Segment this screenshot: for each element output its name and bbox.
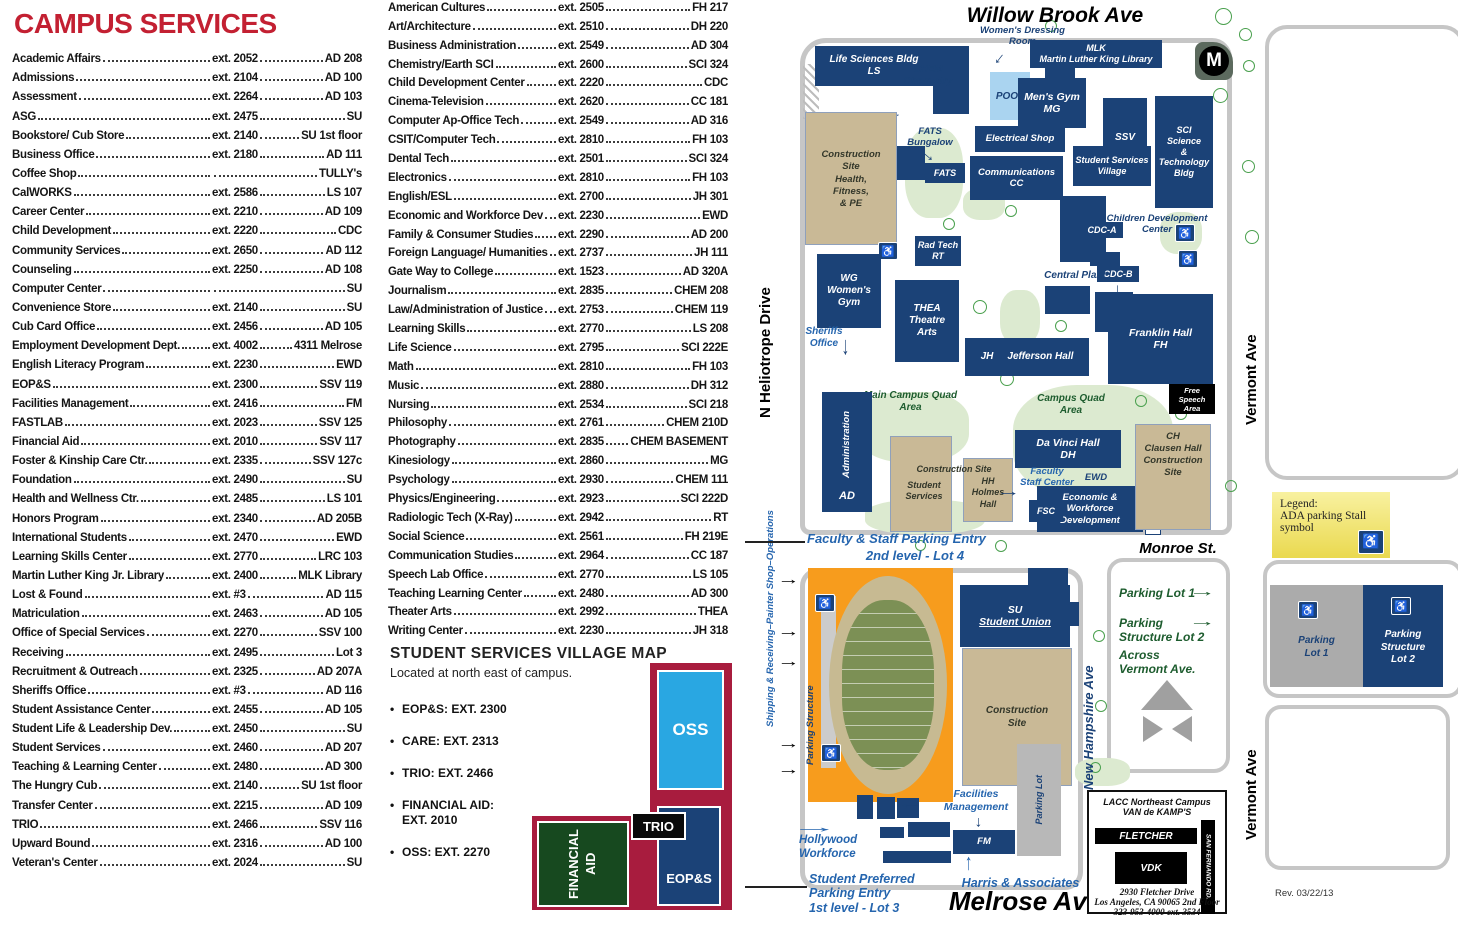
service-name: CalWORKS (12, 187, 72, 199)
department-location: SCI 324 (689, 59, 728, 71)
service-extension: ext. 2140 (212, 302, 258, 314)
tree-icon (1239, 28, 1252, 41)
administration-code: AD (839, 490, 855, 503)
leader-dots (103, 290, 210, 292)
service-extension: ext. #3 (212, 685, 246, 697)
department-extension: ext. 2770 (558, 323, 604, 335)
building-jefferson-hall: JH Jefferson Hall (965, 338, 1089, 376)
directory-row: Computer Center SU (12, 276, 362, 295)
department-name: Philosophy (388, 417, 447, 429)
directory-row: Child Development Center ext. 2220 CDC (388, 71, 728, 90)
ssv-title: STUDENT SERVICES VILLAGE MAP (390, 645, 720, 663)
service-location: SU (347, 283, 362, 295)
service-name: TRIO (12, 819, 38, 831)
compass-arrow-icon (1141, 680, 1193, 710)
street-label-shipping-receiving: Shipping & Receiving–Painter Shop–Operat… (765, 462, 776, 727)
leader-dots (606, 406, 687, 408)
department-location: EWD (702, 210, 728, 222)
leader-dots (535, 236, 556, 238)
directory-row: Foundation ext. 2490 SU (12, 467, 362, 486)
department-location: CC 181 (691, 96, 728, 108)
tree-icon (1213, 88, 1228, 103)
leader-dots (126, 137, 210, 139)
directory-row: Coffee Shop TULLY's (12, 161, 362, 180)
service-location: 4311 Melrose (294, 340, 362, 352)
leader-dots (485, 576, 556, 578)
building-central-plant (1045, 286, 1090, 314)
leader-dots (99, 787, 210, 789)
arrow-icon: → (997, 484, 1021, 499)
directory-row: Business Administration ext. 2549 AD 304 (388, 33, 728, 52)
directory-row: Law/Administration of Justice ext. 2753 … (388, 297, 728, 316)
directory-row: Math ext. 2810 FH 103 (388, 354, 728, 373)
building-fsc: FSC (1029, 500, 1063, 522)
service-location: AD 105 (325, 704, 362, 716)
ada-parking-icon: ♿ (1298, 601, 1318, 619)
directory-row: Economic and Workforce Dev ext. 2230 EWD (388, 203, 728, 222)
department-location: AD 316 (691, 115, 728, 127)
ada-parking-icon: ♿ (821, 744, 841, 762)
leader-dots (606, 576, 691, 578)
directory-row: Cub Card Office ext. 2456 AD 105 (12, 314, 362, 333)
leader-dots (260, 500, 325, 502)
entry-arrow-icon: → (777, 762, 800, 777)
ada-parking-icon: ♿ (1391, 597, 1411, 615)
label-facilities-management: Facilities Management (928, 788, 1024, 813)
leader-dots (260, 405, 344, 407)
building-unlabeled (908, 822, 950, 837)
directory-row: Student Assistance Center ext. 2455 AD 1… (12, 697, 362, 716)
leader-dots (129, 558, 210, 560)
leader-dots (174, 730, 210, 732)
department-name: Theater Arts (388, 606, 452, 618)
arrow-icon: → (973, 815, 988, 830)
directory-row: Family & Consumer Studies ext. 2290 AD 2… (388, 222, 728, 241)
building-unlabeled (1090, 252, 1120, 266)
service-location: Lot 3 (336, 647, 362, 659)
directory-row: Learning Skills Center ext. 2770 LRC 103 (12, 544, 362, 563)
ada-parking-icon: ♿ (815, 594, 835, 612)
leader-dots (545, 311, 556, 313)
leader-dots (606, 141, 690, 143)
directory-row: Facilities Management ext. 2416 FM (12, 391, 362, 410)
leader-dots (521, 122, 556, 124)
service-name: Student Services (12, 742, 101, 754)
label-hollywood-workforce: Hollywood Workforce (799, 834, 894, 862)
service-location: SSV 125 (319, 417, 362, 429)
service-name: EOP&S (12, 379, 51, 391)
service-extension: ext. 2416 (212, 398, 258, 410)
department-name: Learning Skills (388, 323, 465, 335)
leader-dots (606, 217, 700, 219)
department-extension: ext. 2761 (558, 417, 604, 429)
directory-row: Psychology ext. 2930 CHEM 111 (388, 467, 728, 486)
department-extension: ext. 2549 (558, 115, 604, 127)
leader-dots (606, 236, 689, 238)
department-location: THEA (698, 606, 728, 618)
department-extension: ext. 2220 (558, 77, 604, 89)
directory-row: Teaching Learning Center ext. 2480 AD 30… (388, 581, 728, 600)
service-name: FASTLAB (12, 417, 63, 429)
service-location: AD 207A (317, 666, 362, 678)
service-location: LRC 103 (318, 551, 362, 563)
leader-dots (152, 711, 210, 713)
service-name: Learning Skills Center (12, 551, 127, 563)
leader-dots (416, 368, 556, 370)
service-name: Honors Program (12, 513, 99, 525)
service-extension: ext. 2215 (212, 800, 258, 812)
legend-box: Legend: ADA parking Stall symbol ♿ (1272, 492, 1390, 558)
entry-arrow-icon: → (777, 624, 800, 639)
leader-dots (449, 179, 556, 181)
service-name: Lost & Found (12, 589, 83, 601)
leader-dots (182, 347, 210, 349)
leader-dots (260, 328, 323, 330)
department-extension: ext. 1523 (558, 266, 604, 278)
service-location: AD 108 (325, 264, 362, 276)
department-name: Music (388, 380, 419, 392)
entry-arrow-icon: → (777, 572, 800, 587)
label-construction-site: Construction Site (893, 464, 1015, 474)
service-name: Employment Development Dept. (12, 340, 180, 352)
directory-row: Art/Architecture ext. 2510 DH 220 (388, 14, 728, 33)
service-name: Assessment (12, 91, 77, 103)
service-location: AD 205B (317, 513, 362, 525)
revision-date: Rev. 03/22/13 (1275, 888, 1333, 899)
leader-dots (454, 613, 556, 615)
department-location: FH 103 (692, 134, 728, 146)
directory-row: EOP&S ext. 2300 SSV 119 (12, 371, 362, 390)
department-location: CHEM 119 (675, 304, 728, 316)
department-extension: ext. 2942 (558, 512, 604, 524)
service-location: SSV 116 (319, 819, 362, 831)
leader-dots (78, 175, 210, 177)
campus-map-page: CAMPUS SERVICES Academic Affairs ext. 20… (0, 0, 1458, 932)
department-extension: ext. 2737 (558, 247, 604, 259)
leader-dots (260, 807, 323, 809)
service-extension: ext. 2456 (212, 321, 258, 333)
inset-building-trio: TRIO (631, 812, 686, 840)
inset-financial-aid-label: FINANCIAL AID (566, 829, 600, 899)
service-location: SU (347, 302, 362, 314)
leader-dots (260, 615, 323, 617)
leader-dots (495, 273, 556, 275)
tree-icon (1243, 60, 1255, 72)
leader-dots (260, 213, 323, 215)
arrow-icon: → (1188, 584, 1216, 598)
service-location: SSV 100 (319, 627, 362, 639)
department-extension: ext. 2930 (558, 474, 604, 486)
service-location: AD 116 (325, 685, 362, 697)
service-extension: ext. 2140 (212, 130, 258, 142)
service-location: AD 100 (325, 72, 362, 84)
service-extension: ext. 2490 (212, 474, 258, 486)
bullet-text: OSS: EXT. 2270 (402, 845, 490, 860)
department-name: Electronics (388, 172, 447, 184)
service-extension: ext. 2495 (212, 647, 258, 659)
leader-dots (96, 156, 210, 158)
leader-dots (103, 60, 210, 62)
department-extension: ext. 2880 (558, 380, 604, 392)
building-mens-gym: Men's Gym MG (1018, 78, 1086, 128)
department-location: AD 300 (691, 588, 728, 600)
department-location: LS 105 (693, 569, 728, 581)
directory-list-middle: American Cultures ext. 2505 FH 217 Art/A… (388, 0, 728, 637)
jefferson-hall-code: JH (981, 351, 994, 363)
service-extension: ext. 2052 (212, 53, 258, 65)
leader-dots (141, 500, 210, 502)
service-location: AD 100 (325, 838, 362, 850)
leader-dots (260, 462, 311, 464)
department-name: Communication Studies (388, 550, 513, 562)
department-extension: ext. 2810 (558, 172, 604, 184)
department-extension: ext. 2923 (558, 493, 604, 505)
directory-row: The Hungry Cub ext. 2140 SU 1st floor (12, 773, 362, 792)
building-cdc-a: CDC-A (1081, 222, 1123, 238)
building-unlabeled (877, 797, 895, 819)
leader-dots (606, 311, 673, 313)
leader-dots (92, 845, 210, 847)
leader-dots (86, 213, 210, 215)
label-across-vermont: Across Vermont Ave. (1119, 648, 1214, 677)
department-extension: ext. 2770 (558, 569, 604, 581)
bullet-text: CARE: EXT. 2313 (402, 734, 499, 749)
leader-dots (166, 577, 210, 579)
service-name: Coffee Shop (12, 168, 76, 180)
directory-row: Chemistry/Earth SCI ext. 2600 SCI 324 (388, 52, 728, 71)
service-location: SU (347, 723, 362, 735)
directory-row: Honors Program ext. 2340 AD 205B (12, 505, 362, 524)
leader-dots (260, 366, 334, 368)
department-name: Art/Architecture (388, 21, 471, 33)
directory-row: Matriculation ext. 2463 AD 105 (12, 601, 362, 620)
leader-dots (473, 28, 556, 30)
leader-dots (606, 349, 679, 351)
free-speech-area: Free Speech Area (1169, 384, 1215, 414)
leader-dots (260, 634, 317, 636)
construction-site-health-fitness-pe: Construction Site Health, Fitness, & PE (805, 112, 897, 245)
leader-dots (97, 328, 210, 330)
department-name: Computer Ap-Office Tech (388, 115, 519, 127)
department-location: FH 103 (692, 361, 728, 373)
directory-row: Office of Special Services ext. 2270 SSV… (12, 620, 362, 639)
leader-dots (65, 424, 210, 426)
service-location: SU (347, 111, 362, 123)
service-name: Student Life & Leadership Dev. (12, 723, 172, 735)
service-location: SSV 119 (319, 379, 362, 391)
service-name: Academic Affairs (12, 53, 101, 65)
leader-dots (113, 309, 210, 311)
leader-dots (260, 864, 345, 866)
department-location: CDC (704, 77, 728, 89)
ada-parking-icon: ♿ (1178, 250, 1198, 268)
department-name: Economic and Workforce Dev (388, 210, 543, 222)
service-name: Counseling (12, 264, 72, 276)
service-location: TULLY's (319, 168, 362, 180)
service-name: English Literacy Program (12, 359, 144, 371)
department-extension: ext. 2501 (558, 153, 604, 165)
leader-dots (260, 232, 336, 234)
service-extension: ext. 2325 (212, 666, 258, 678)
service-location: AD 105 (325, 321, 362, 333)
department-extension: ext. 2810 (558, 361, 604, 373)
service-extension: ext. 2475 (212, 111, 258, 123)
service-location: AD 111 (326, 149, 362, 161)
department-location: CHEM BASEMENT (630, 436, 728, 448)
leader-dots (497, 141, 556, 143)
leader-dots (454, 198, 556, 200)
service-extension: ext. 2335 (212, 455, 258, 467)
service-location: CDC (338, 225, 362, 237)
inset-building-oss: OSS (657, 670, 724, 790)
department-location: SCI 222E (681, 342, 728, 354)
lawn-patch (1000, 290, 1040, 345)
service-name: Matriculation (12, 608, 80, 620)
department-name: Social Science (388, 531, 464, 543)
directory-row: Assessment ext. 2264 AD 103 (12, 84, 362, 103)
leader-dots (260, 845, 323, 847)
department-extension: ext. 2561 (558, 531, 604, 543)
service-extension: ext. 2250 (212, 264, 258, 276)
leader-dots (248, 596, 324, 598)
leader-dots (100, 864, 210, 866)
leader-dots (606, 519, 711, 521)
ada-parking-icon: ♿ (1358, 530, 1384, 554)
leader-dots (448, 292, 556, 294)
department-name: Cinema-Television (388, 96, 484, 108)
metro-m-logo: M (1199, 46, 1229, 76)
service-extension: ext. 2010 (212, 436, 258, 448)
tree-icon (1095, 700, 1107, 712)
directory-row: Recruitment & Outreach ext. 2325 AD 207A (12, 659, 362, 678)
inset-building-financial-aid: FINANCIAL AID (537, 821, 629, 907)
department-name: Business Administration (388, 40, 516, 52)
department-name: English/ESL (388, 191, 452, 203)
leader-dots (88, 692, 210, 694)
service-name: Recruitment & Outreach (12, 666, 138, 678)
directory-row: Computer Ap-Office Tech ext. 2549 AD 316 (388, 108, 728, 127)
service-location: AD 109 (325, 800, 362, 812)
leader-dots (129, 539, 210, 541)
leader-dots (606, 613, 696, 615)
label-parking-lot: Parking Lot (1034, 775, 1044, 825)
leader-dots (260, 424, 317, 426)
department-name: Photography (388, 436, 456, 448)
leader-dots (260, 558, 316, 560)
street-label-monroe: Monroe St. (1128, 540, 1228, 557)
department-name: American Cultures (388, 2, 485, 14)
leader-dots (76, 79, 210, 81)
department-name: Child Development Center (388, 77, 525, 89)
leader-dots (550, 254, 556, 256)
entry-arrow-icon: → (777, 654, 800, 669)
directory-row: Bookstore/ Cub Store ext. 2140 SU 1st fl… (12, 123, 362, 142)
service-name: Facilities Management (12, 398, 128, 410)
directory-row: Student Life & Leadership Dev. ext. 2450… (12, 716, 362, 735)
label-lot4: 2nd level - Lot 4 (835, 548, 995, 564)
leader-dots (260, 826, 317, 828)
service-location: LS 107 (327, 187, 362, 199)
building-unlabeled (857, 795, 873, 819)
department-extension: ext. 2835 (558, 285, 604, 297)
service-name: Financial Aid (12, 436, 79, 448)
leader-dots (496, 66, 557, 68)
street-label-vermont-upper: Vermont Ave (1243, 295, 1260, 465)
leader-dots (260, 309, 345, 311)
service-extension: ext. 2340 (212, 513, 258, 525)
east-block-upper (1265, 25, 1458, 480)
leader-dots (451, 160, 556, 162)
label-parking-structure: Parking Structure (805, 610, 816, 765)
label-student-preferred-parking: Student Preferred Parking Entry 1st leve… (809, 872, 934, 915)
leader-dots (606, 462, 708, 464)
leader-dots (214, 175, 317, 177)
leader-dots (431, 406, 556, 408)
service-name: Foster & Kinship Care Ctr. (12, 455, 147, 467)
directory-row: TRIO ext. 2466 SSV 116 (12, 812, 362, 831)
vdk-title-1: LACC Northeast Campus (1089, 797, 1225, 807)
leader-dots (606, 330, 691, 332)
tree-icon (943, 218, 955, 230)
leader-dots (606, 424, 664, 426)
leader-dots (486, 103, 556, 105)
east-block-lower (1265, 705, 1450, 870)
directory-row: Photography ext. 2835 CHEM BASEMENT (388, 429, 728, 448)
department-location: SCI 324 (689, 153, 728, 165)
leader-dots (260, 730, 345, 732)
department-location: AD 304 (691, 40, 728, 52)
building-fats: FATS (925, 163, 965, 183)
directory-row: Theater Arts ext. 2992 THEA (388, 600, 728, 619)
department-location: FH 103 (692, 172, 728, 184)
construction-site-clausen-hall: CH Clausen Hall Construction Site (1135, 424, 1211, 530)
service-extension: ext. 2480 (212, 761, 258, 773)
building-administration: Administration AD (822, 392, 872, 512)
leader-dots (545, 217, 556, 219)
directory-row: Veteran's Center ext. 2024 SU (12, 850, 362, 869)
service-location: SU 1st floor (301, 130, 362, 142)
building-facilities-management: FM (953, 830, 1015, 854)
department-name: Radiologic Tech (X-Ray) (388, 512, 513, 524)
leader-dots (454, 349, 556, 351)
service-location: AD 103 (325, 91, 362, 103)
leader-dots (113, 232, 210, 234)
entry-arrow-icon: → (777, 736, 800, 751)
department-location: CHEM 210D (666, 417, 728, 429)
jefferson-hall-name: Jefferson Hall (1007, 351, 1073, 363)
directory-row: Dental Tech ext. 2501 SCI 324 (388, 146, 728, 165)
service-extension: ext. 2400 (212, 570, 258, 582)
service-name: Bookstore/ Cub Store (12, 130, 124, 142)
service-extension: ext. 2024 (212, 857, 258, 869)
leader-dots (449, 424, 556, 426)
directory-row: Community Services ext. 2650 AD 112 (12, 237, 362, 256)
directory-row: Kinesiology ext. 2860 MG (388, 448, 728, 467)
bullet-icon: • (390, 702, 402, 717)
leader-dots (606, 66, 687, 68)
department-name: Kinesiology (388, 455, 450, 467)
service-location: EWD (336, 532, 362, 544)
leader-dots (606, 538, 683, 540)
building-student-services-village: Student Services Village (1073, 146, 1151, 186)
compass-arrow-icon (1172, 716, 1192, 742)
bullet-text: FINANCIAL AID: EXT. 2010 (402, 798, 494, 828)
directory-row: Upward Bound ext. 2316 AD 100 (12, 831, 362, 850)
leader-dots (53, 386, 210, 388)
leader-dots (497, 500, 556, 502)
department-name: Math (388, 361, 414, 373)
department-location: JH 111 (694, 247, 728, 259)
